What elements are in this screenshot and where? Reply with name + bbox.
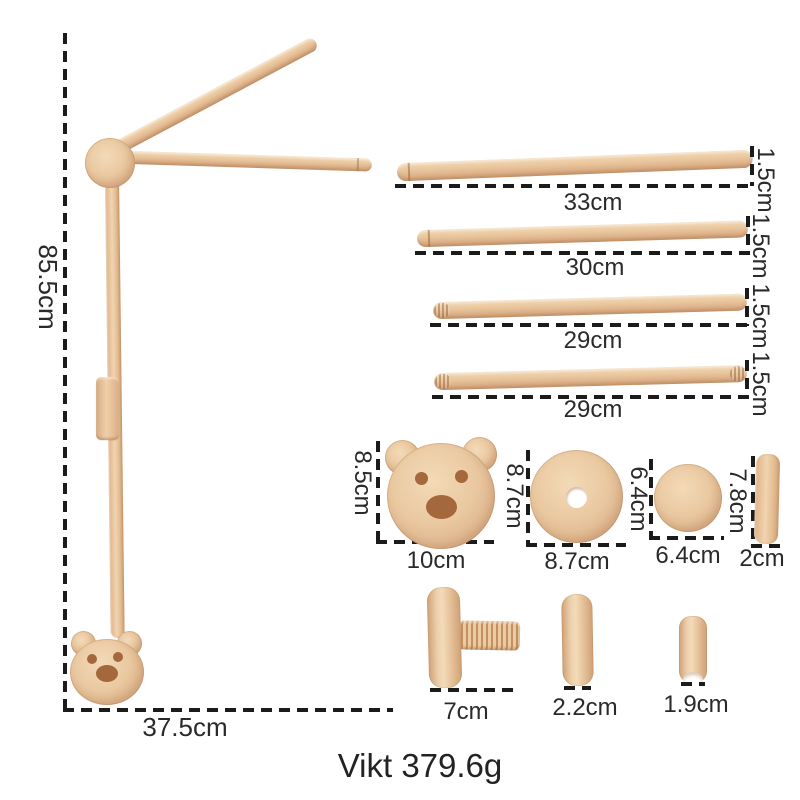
disc-height-label: 8.7cm [501,456,527,536]
rod-length-label: 29cm [553,397,633,423]
height-dimension-line [63,33,67,711]
upper-arm-rod [110,36,320,156]
weight-label: Vikt 379.6g [300,748,540,784]
rod-photo [397,150,753,182]
rod-photo [433,293,747,319]
rod-diameter-label: 1.5cm [747,344,773,424]
bear-eye-right [113,652,123,662]
rod-length-label: 33cm [553,190,633,216]
rod-diameter-label: 1.5cm [747,206,773,286]
screw-knob-bolt [458,620,521,650]
lower-arm-rod [125,151,372,172]
ring-width-label: 1.9cm [656,692,736,718]
cylinder-photo [754,454,780,545]
screw-knob-width-line [430,688,517,692]
bear-plate-height-line [376,441,380,544]
small-disc-photo [654,464,722,532]
bear-plate-height-label: 8.5cm [349,443,375,523]
small-disc-width-line [649,536,724,540]
bear-plate-eye-left [415,472,428,485]
assembly-width-label: 37.5cm [135,714,235,740]
hub-disc [85,138,135,188]
bear-plate-width-label: 10cm [396,548,476,574]
rod-photo [434,365,747,390]
width-dimension-line [63,708,393,712]
thick-disc-width-label: 2.2cm [545,695,625,721]
bear-plate-nose [426,495,457,519]
thick-disc-photo [561,594,594,687]
bear-nose [96,665,118,682]
small-disc-width-label: 6.4cm [648,543,728,569]
disc-width-line [526,543,626,547]
product-dimension-diagram: 85.5cm 37.5cm 33cm 1.5cm 30cm 1.5cm [0,0,800,800]
pole-connector-sleeve [96,377,119,440]
rod-photo [417,220,748,247]
small-disc-height-label: 6.4cm [625,459,651,539]
disc-hole [566,487,587,508]
thick-disc-width-line [564,686,591,690]
bear-eye-left [87,654,97,664]
screw-knob-disc [427,587,463,689]
cylinder-height-label: 7.8cm [724,461,750,541]
assembly-height-label: 85.5cm [35,235,61,339]
ring-width-line [681,682,705,686]
bear-plate-eye-right [455,470,468,483]
rod-length-line [395,184,754,188]
disc-width-label: 8.7cm [537,549,617,575]
cylinder-width-label: 2cm [722,546,800,572]
rod-length-label: 29cm [553,328,633,354]
ring-photo [679,616,707,683]
rod-length-label: 30cm [555,255,635,281]
disc-with-hole-photo [530,450,623,543]
screw-knob-width-label: 7cm [426,699,506,725]
